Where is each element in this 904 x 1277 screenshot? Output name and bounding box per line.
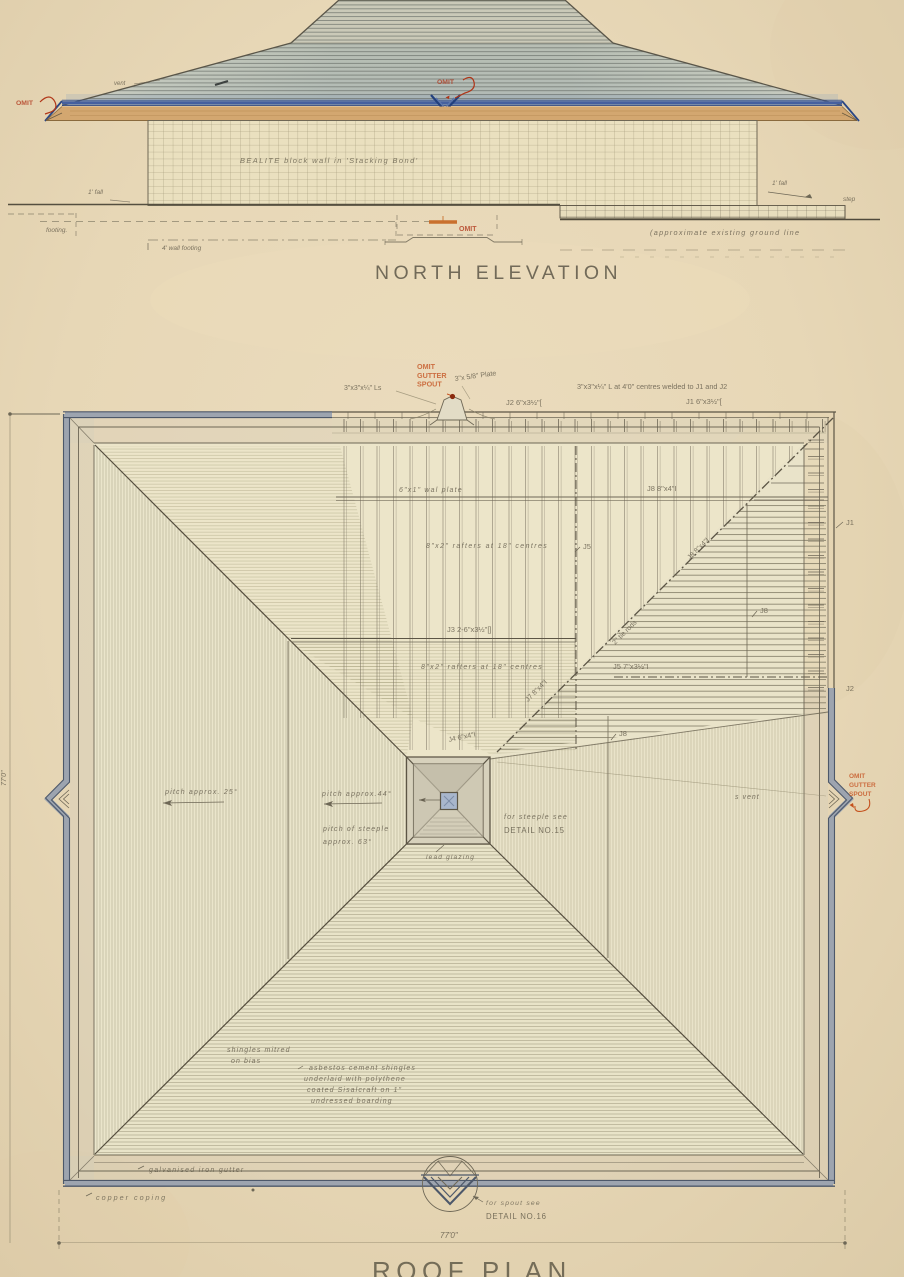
svg-text:DETAIL NO.15: DETAIL NO.15 [504,826,565,835]
svg-text:ROOF PLAN: ROOF PLAN [372,1256,572,1277]
svg-text:pitch approx. 25°: pitch approx. 25° [164,788,238,796]
svg-text:77'0": 77'0" [1,770,8,786]
svg-text:OMIT: OMIT [437,79,455,86]
svg-text:asbestos cement shingles: asbestos cement shingles [309,1065,416,1072]
svg-text:vent: vent [114,81,126,87]
svg-text:J2 6"x3½"[: J2 6"x3½"[ [506,398,543,407]
svg-text:pitch approx.44°: pitch approx.44° [321,790,392,798]
svg-text:BEALITE block wall in 'Stac: BEALITE block wall in 'Stacking Bond' [240,156,418,165]
svg-text:SPOUT: SPOUT [849,791,871,798]
svg-text:J1: J1 [846,518,854,527]
svg-text:3"x3"x¼" Ls: 3"x3"x¼" Ls [344,385,382,392]
svg-text:on bias: on bias [231,1058,261,1065]
svg-text:8"x2" rafters at 18" centres: 8"x2" rafters at 18" centres [426,543,548,550]
svg-text:shingles mitred: shingles mitred [227,1047,291,1054]
svg-text:footing.: footing. [46,227,68,234]
svg-text:8"x2" rafters at 18" centres: 8"x2" rafters at 18" centres [421,664,543,671]
svg-text:J5: J5 [583,542,591,551]
svg-text:coated Sisalcraft on 1": coated Sisalcraft on 1" [307,1087,402,1094]
svg-text:step: step [843,196,856,203]
svg-text:OMIT: OMIT [849,773,865,780]
svg-text:(approximate existing ground l: (approximate existing ground line [650,228,800,237]
svg-text:galvanised iron gutter: galvanised iron gutter [149,1167,245,1174]
svg-text:approx. 63°: approx. 63° [323,838,372,846]
svg-text:3"x3"x¼" L at 4'0" centres wel: 3"x3"x¼" L at 4'0" centres welded to J1 … [577,382,727,391]
svg-text:pitch of steeple: pitch of steeple [322,826,389,833]
svg-text:J8 8"x4"I: J8 8"x4"I [647,484,677,493]
svg-text:for spout see: for spout see [486,1200,541,1207]
svg-text:undressed boarding: undressed boarding [311,1098,393,1105]
svg-text:OMIT: OMIT [417,362,436,371]
svg-text:copper coping: copper coping [96,1193,167,1202]
svg-text:NORTH ELEVATION: NORTH ELEVATION [375,262,622,284]
svg-text:underlaid with polythene: underlaid with polythene [304,1076,406,1083]
svg-text:for steeple see: for steeple see [504,814,568,821]
svg-text:J8: J8 [760,606,768,615]
svg-text:GUTTER: GUTTER [417,371,447,380]
svg-text:OMIT: OMIT [16,100,34,107]
svg-text:J8: J8 [619,729,627,738]
svg-text:lead glazing: lead glazing [426,854,475,861]
svg-text:J1 6"x3½"[: J1 6"x3½"[ [686,397,723,406]
svg-text:6"x1" wal plate: 6"x1" wal plate [399,487,463,494]
svg-text:1' fall: 1' fall [88,189,104,196]
svg-text:DETAIL NO.16: DETAIL NO.16 [486,1212,547,1221]
svg-text:77'0": 77'0" [440,1231,459,1240]
svg-text:4' wall footing: 4' wall footing [162,245,202,252]
svg-text:s vent: s vent [735,794,760,801]
svg-text:1' fall: 1' fall [772,180,788,187]
svg-text:J2: J2 [846,684,854,693]
svg-text:OMIT: OMIT [459,226,477,233]
svg-text:SPOUT: SPOUT [417,380,442,389]
svg-text:GUTTER: GUTTER [849,782,876,789]
svg-text:J3 2-6"x3½"[]: J3 2-6"x3½"[] [447,625,492,634]
svg-text:J5 7"x3½"I: J5 7"x3½"I [613,662,649,671]
